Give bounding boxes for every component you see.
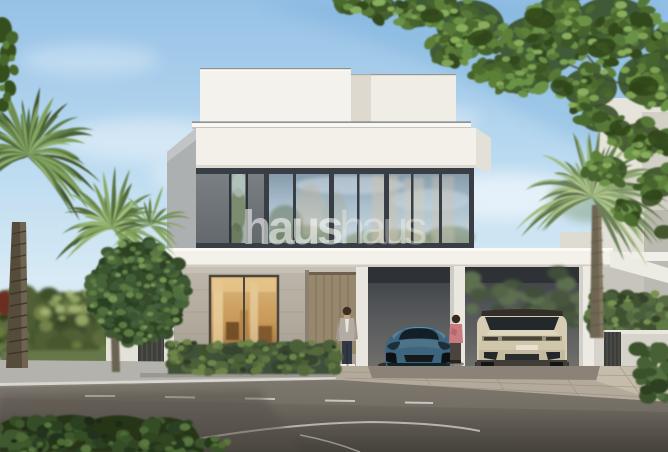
svg-text:haus: haus [242,202,342,255]
svg-text:haus: haus [339,201,426,254]
